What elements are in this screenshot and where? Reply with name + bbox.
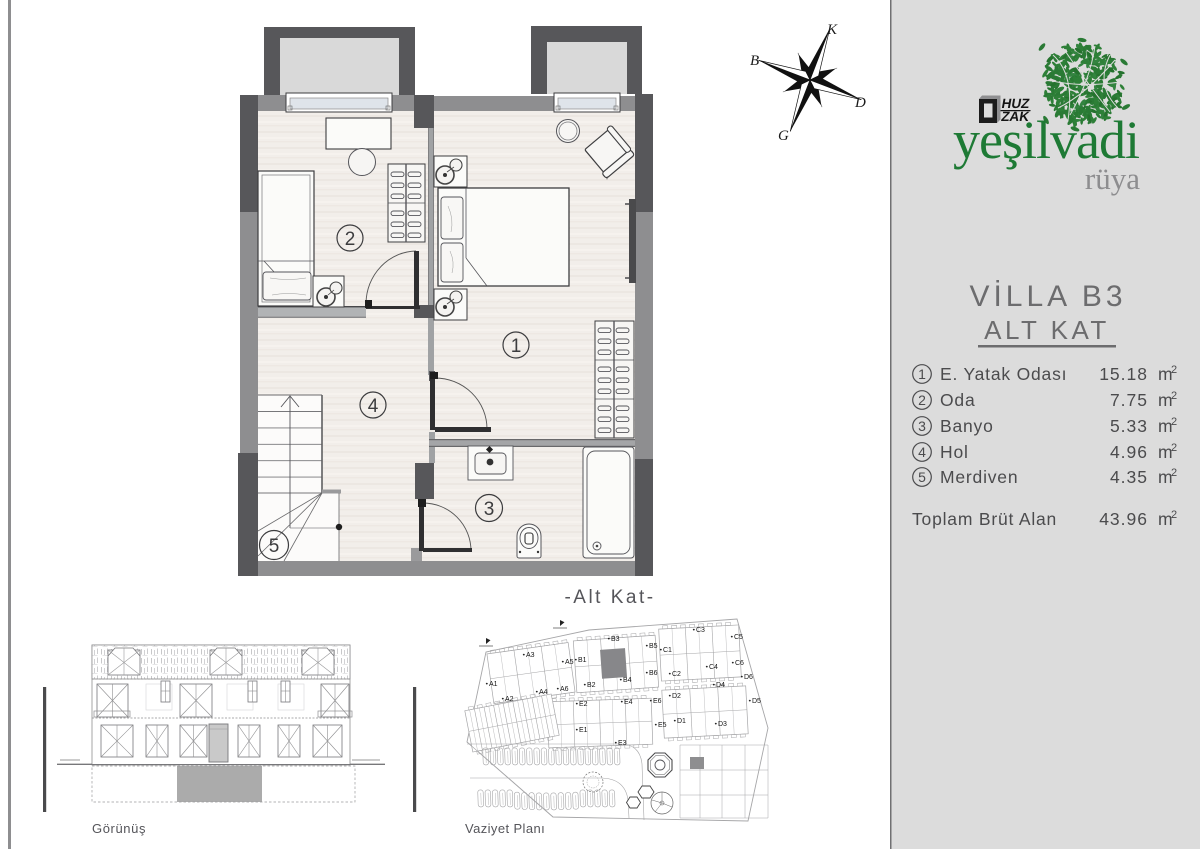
svg-text:A6: A6 [560, 686, 569, 693]
svg-text:E1: E1 [579, 727, 588, 734]
svg-text:D6: D6 [744, 674, 753, 681]
svg-text:5: 5 [269, 536, 280, 557]
svg-text:2: 2 [1171, 390, 1177, 402]
svg-text:D5: D5 [752, 698, 761, 705]
svg-text:E3: E3 [618, 740, 627, 747]
svg-text:K: K [826, 22, 838, 38]
svg-text:4.35: 4.35 [1110, 467, 1148, 487]
svg-text:A4: A4 [539, 689, 548, 696]
svg-text:A5: A5 [565, 659, 574, 666]
svg-text:Vaziyet Planı: Vaziyet Planı [465, 821, 545, 836]
svg-text:15.18: 15.18 [1099, 364, 1148, 384]
svg-text:Oda: Oda [940, 390, 975, 410]
svg-text:5: 5 [918, 469, 926, 485]
svg-text:rüya: rüya [1085, 161, 1140, 196]
svg-text:G: G [778, 128, 789, 144]
svg-text:Banyo: Banyo [940, 416, 994, 436]
svg-text:Hol: Hol [940, 442, 969, 462]
svg-text:2: 2 [1171, 467, 1177, 479]
svg-text:2: 2 [345, 229, 356, 250]
svg-text:A2: A2 [505, 696, 514, 703]
svg-text:E. Yatak Odası: E. Yatak Odası [940, 364, 1067, 384]
svg-text:B3: B3 [611, 636, 620, 643]
svg-text:4: 4 [918, 444, 926, 460]
svg-text:B1: B1 [578, 657, 587, 664]
svg-text:C2: C2 [672, 671, 681, 678]
svg-text:-Alt Kat-: -Alt Kat- [564, 587, 655, 608]
svg-text:E4: E4 [624, 699, 633, 706]
svg-text:2: 2 [1171, 442, 1177, 454]
svg-text:ALT KAT: ALT KAT [984, 315, 1110, 345]
svg-text:VİLLA B3: VİLLA B3 [969, 280, 1126, 313]
svg-text:3: 3 [918, 418, 926, 434]
svg-text:D3: D3 [718, 721, 727, 728]
svg-text:A1: A1 [489, 681, 498, 688]
svg-text:1: 1 [511, 336, 522, 357]
svg-text:B2: B2 [587, 682, 596, 689]
svg-text:C4: C4 [709, 664, 718, 671]
svg-text:A3: A3 [526, 652, 535, 659]
svg-text:2: 2 [918, 392, 926, 408]
svg-text:3: 3 [484, 499, 495, 520]
svg-text:Görünüş: Görünüş [92, 821, 146, 836]
svg-text:B6: B6 [649, 670, 658, 677]
svg-text:E5: E5 [658, 722, 667, 729]
svg-text:E2: E2 [579, 701, 588, 708]
svg-text:C1: C1 [663, 647, 672, 654]
svg-text:C6: C6 [735, 660, 744, 667]
svg-text:4.96: 4.96 [1110, 442, 1148, 462]
svg-text:C3: C3 [696, 627, 705, 634]
svg-text:2: 2 [1171, 509, 1177, 521]
svg-text:D1: D1 [677, 718, 686, 725]
svg-text:4: 4 [368, 396, 379, 417]
svg-text:Toplam Brüt Alan: Toplam Brüt Alan [912, 509, 1057, 529]
svg-text:E6: E6 [653, 698, 662, 705]
svg-text:5.33: 5.33 [1110, 416, 1148, 436]
svg-text:7.75: 7.75 [1110, 390, 1148, 410]
svg-text:D4: D4 [716, 682, 725, 689]
svg-text:B5: B5 [649, 643, 658, 650]
svg-text:D: D [854, 95, 866, 111]
svg-text:D2: D2 [672, 693, 681, 700]
svg-text:Merdiven: Merdiven [940, 467, 1018, 487]
svg-text:B4: B4 [623, 677, 632, 684]
svg-text:1: 1 [918, 366, 926, 382]
svg-text:43.96: 43.96 [1099, 509, 1148, 529]
svg-text:C5: C5 [734, 634, 743, 641]
svg-text:2: 2 [1171, 364, 1177, 376]
svg-text:2: 2 [1171, 416, 1177, 428]
svg-text:B: B [750, 53, 759, 69]
